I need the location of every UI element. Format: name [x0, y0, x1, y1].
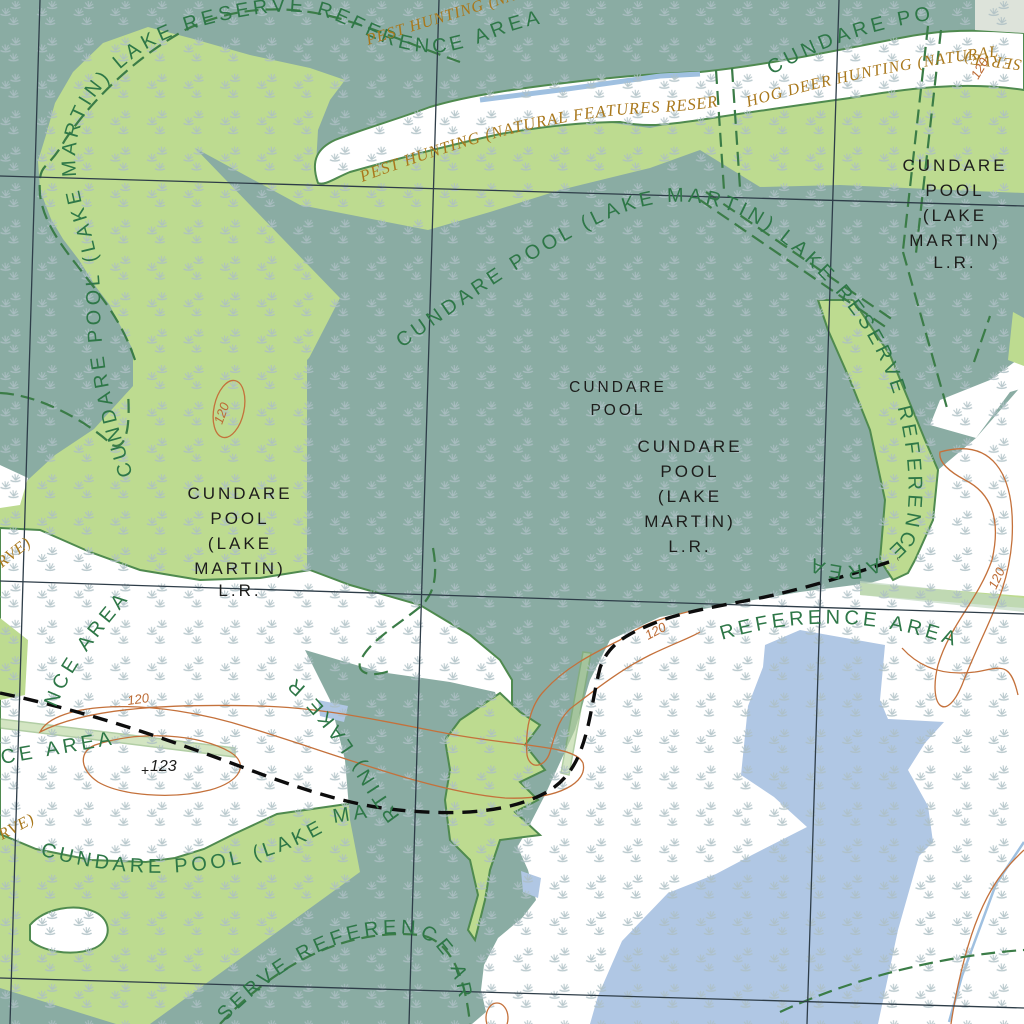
svg-text:CUNDARE: CUNDARE: [569, 379, 667, 396]
svg-text:120: 120: [126, 690, 150, 708]
svg-text:CUNDARE: CUNDARE: [902, 156, 1007, 175]
svg-text:(LAKE: (LAKE: [208, 534, 272, 553]
svg-text:CUNDARE: CUNDARE: [637, 437, 742, 456]
svg-text:L.R.: L.R.: [218, 581, 261, 600]
svg-text:123: 123: [150, 758, 177, 775]
svg-text:MARTIN): MARTIN): [909, 231, 1001, 250]
svg-text:POOL: POOL: [660, 462, 719, 481]
svg-text:POOL: POOL: [210, 509, 269, 528]
svg-text:+: +: [141, 762, 149, 778]
svg-text:POOL: POOL: [590, 402, 645, 419]
svg-text:MARTIN): MARTIN): [194, 559, 286, 578]
svg-text:(LAKE: (LAKE: [923, 206, 987, 225]
svg-text:(LAKE: (LAKE: [658, 487, 722, 506]
svg-text:CUNDARE: CUNDARE: [187, 484, 292, 503]
svg-text:L.R.: L.R.: [933, 253, 976, 272]
svg-text:POOL: POOL: [925, 181, 984, 200]
svg-text:MARTIN): MARTIN): [644, 512, 736, 531]
svg-text:L.R.: L.R.: [668, 537, 711, 556]
